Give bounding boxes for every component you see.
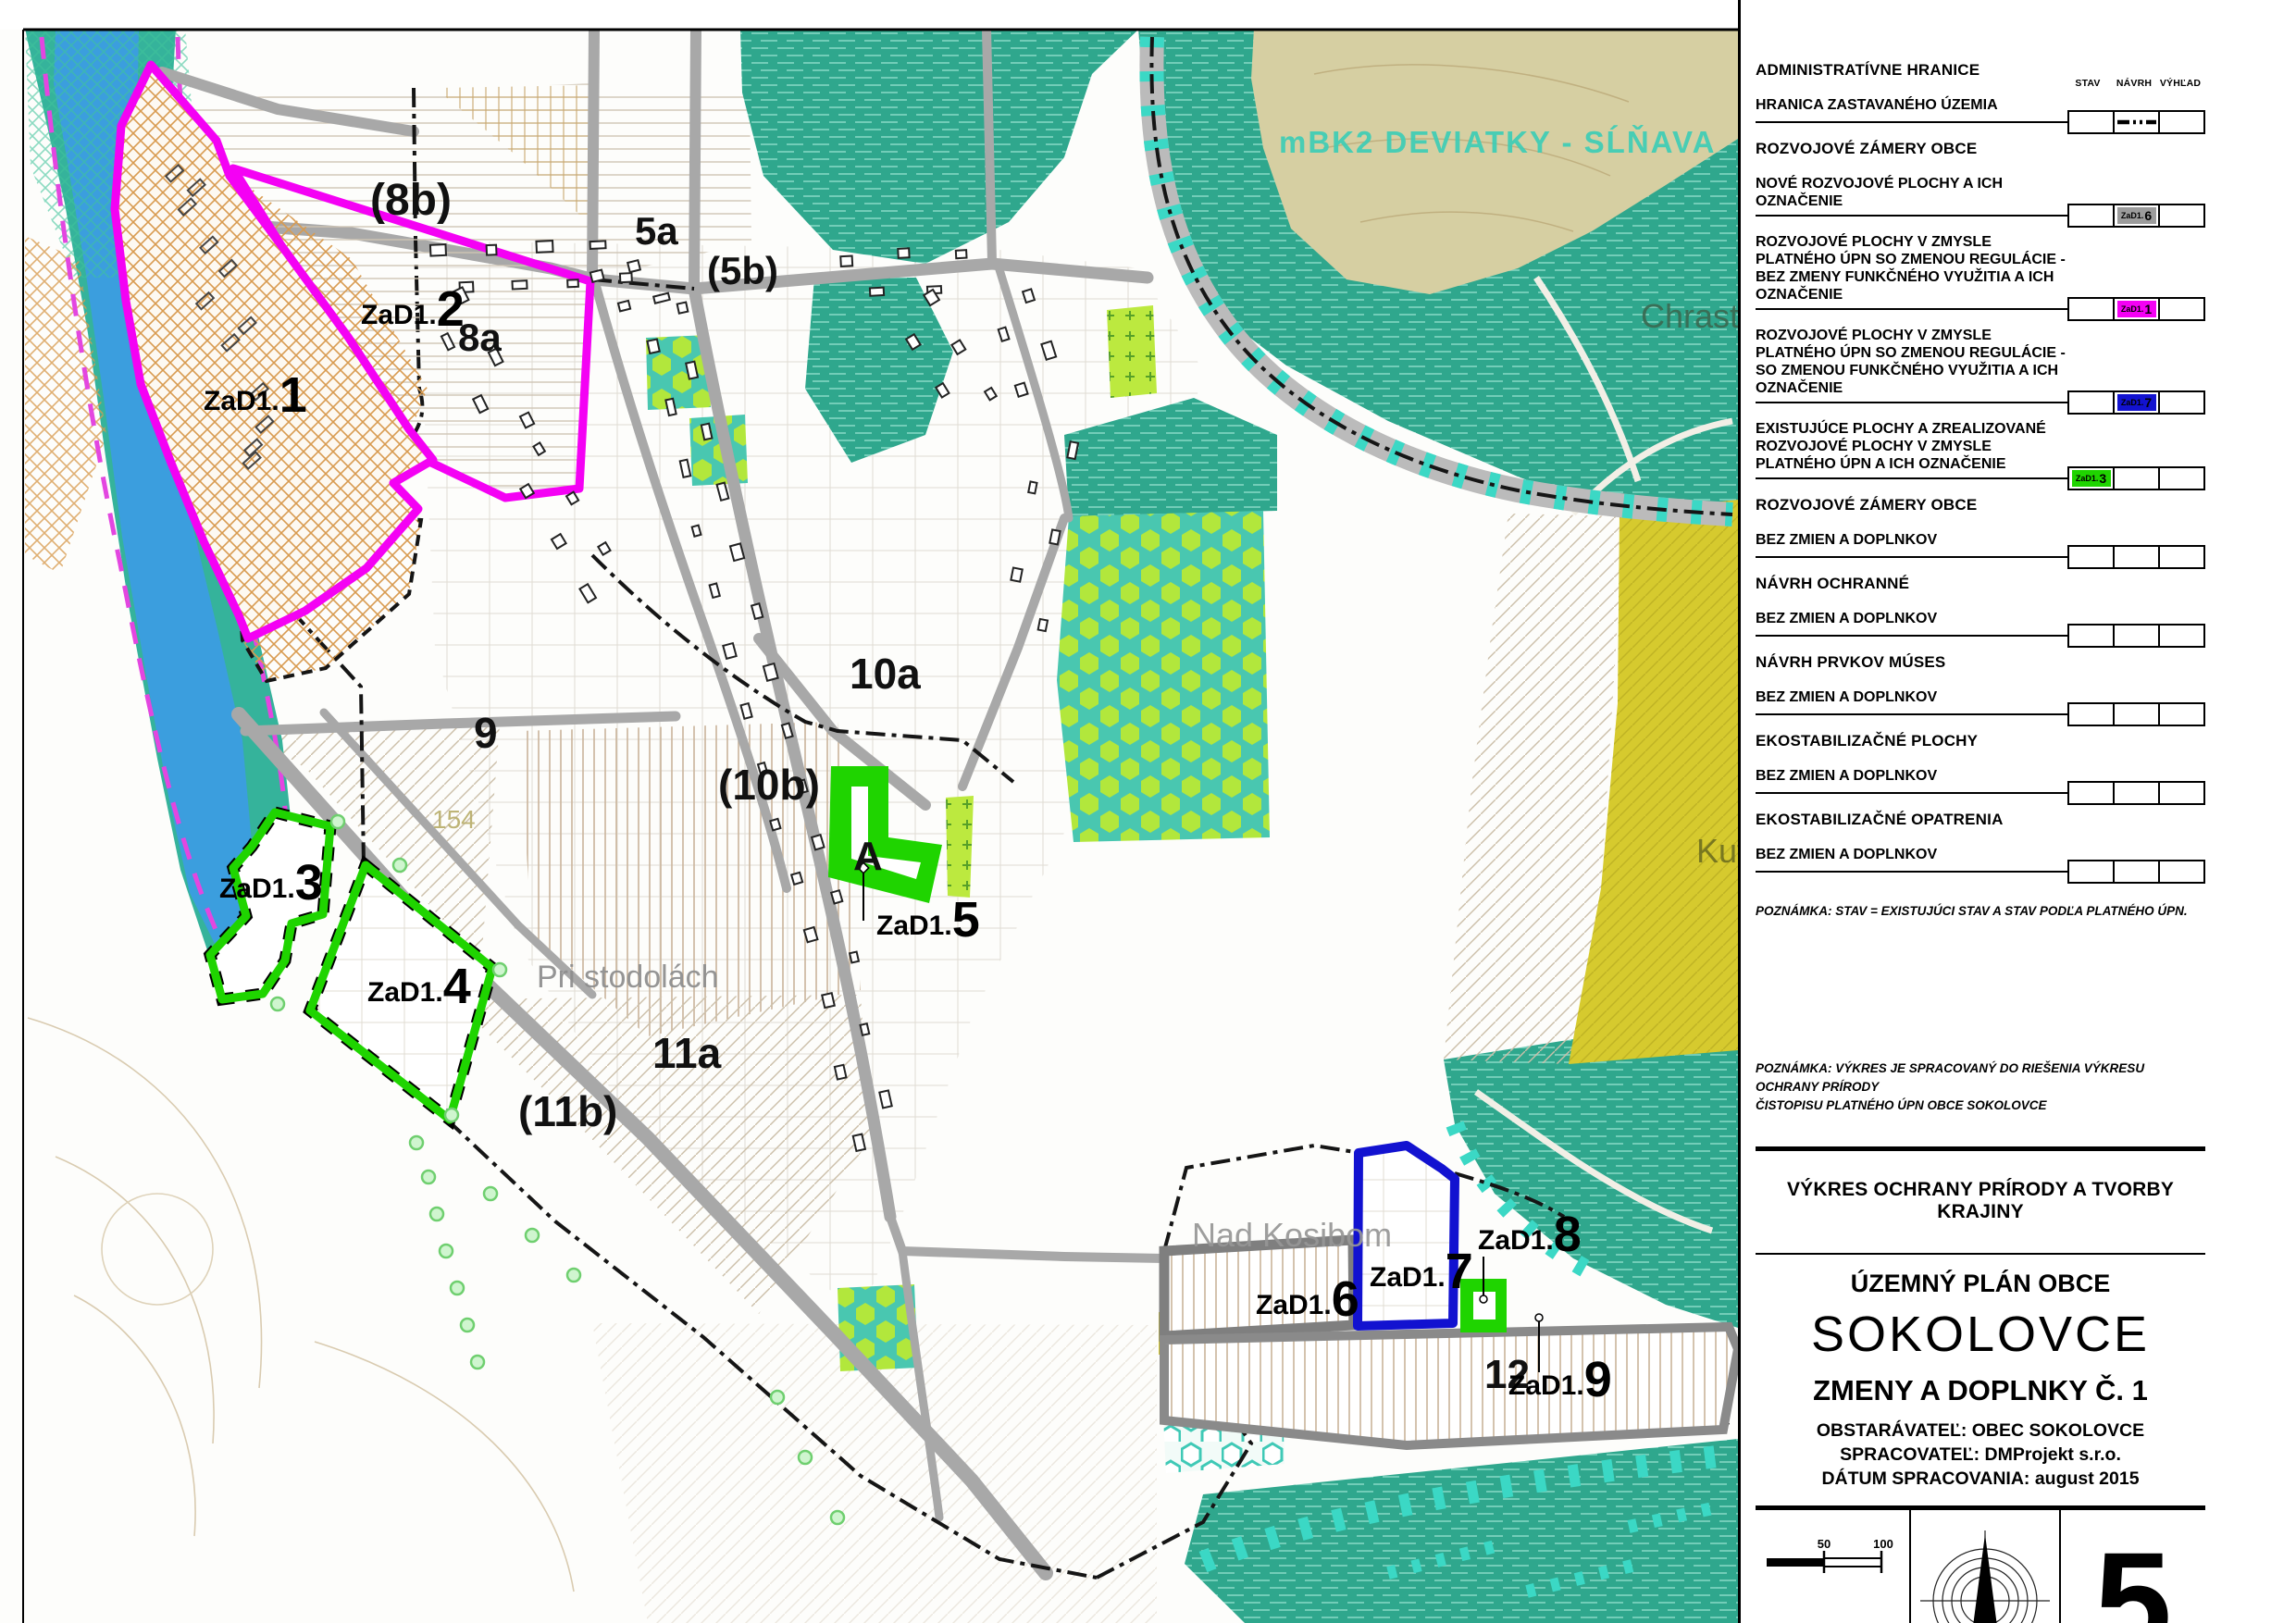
tree-marker: [461, 1319, 474, 1332]
house: [791, 873, 802, 885]
legend-area-tag: ZaD1.1: [2117, 301, 2156, 317]
legend-cell: ZaD1.6: [2113, 204, 2160, 228]
place-label: Chrast: [1641, 297, 1738, 335]
legend-row: BEZ ZMIEN A DOPLNKOV: [1756, 531, 2205, 558]
tag-prefix: ZaD1.: [2121, 399, 2144, 407]
legend-cell: [2113, 781, 2160, 805]
scale-section: 50 100 MIERKA 1 : 5 000: [1756, 1510, 1909, 1623]
sheet-number: 5: [2061, 1510, 2205, 1623]
tag-number: 7: [2144, 396, 2152, 409]
house: [512, 280, 527, 289]
tag-prefix: ZaD1.: [2121, 212, 2144, 220]
plan-type: ÚZEMNÝ PLÁN OBCE: [1756, 1270, 2205, 1298]
legend-column-header: NÁVRH: [2111, 78, 2157, 89]
legend-row: BEZ ZMIEN A DOPLNKOV: [1756, 846, 2205, 873]
scale-tick-50: 50: [1818, 1537, 1831, 1551]
divider-thick: [1756, 1146, 2205, 1151]
legend-cell: [2113, 624, 2160, 648]
legend-symbol-cells: [2069, 624, 2205, 648]
legend-cell: [2158, 702, 2205, 726]
legend-row: NOVÉ ROZVOJOVÉ PLOCHY A ICH OZNAČENIEZaD…: [1756, 175, 2205, 217]
tag-number: 6: [2144, 209, 2152, 222]
legend-column-header: STAV: [2065, 78, 2111, 89]
contractor-line: SPRACOVATEĽ: DMProjekt s.r.o.: [1756, 1443, 2205, 1467]
legend-row: BEZ ZMIEN A DOPLNKOV: [1756, 688, 2205, 715]
house: [835, 1065, 847, 1080]
legend-cell: [2067, 204, 2115, 228]
place-label: Nad Kosibom: [1192, 1216, 1392, 1254]
title-meta: OBSTARÁVATEĽ: OBEC SOKOLOVCE SPRACOVATEĽ…: [1756, 1419, 2205, 1491]
legend-cell: [2113, 110, 2160, 134]
area-label: 11a: [652, 1029, 722, 1077]
tree-marker: [567, 1269, 580, 1282]
legend-symbol-cells: ZaD1.7: [2069, 390, 2205, 415]
scale-tick-100: 100: [1873, 1537, 1893, 1551]
legend-symbol-cells: [2069, 702, 2205, 726]
legend-row: ROZVOJOVÉ PLOCHY V ZMYSLE PLATNÉHO ÚPN S…: [1756, 327, 2205, 403]
legend-column-headers: STAVNÁVRHVÝHĽAD: [2065, 78, 2205, 89]
legend-panel: ADMINISTRATÍVNE HRANICESTAVNÁVRHVÝHĽADHR…: [1738, 0, 2296, 1623]
place-label: mBK2 DEVIATKY - SĹŇAVA: [1279, 125, 1716, 159]
house: [1011, 568, 1022, 582]
legend-cell: [2067, 297, 2115, 321]
legend-symbol-cells: [2069, 860, 2205, 884]
tag-prefix: ZaD1.: [2076, 475, 2099, 483]
area-label: (11b): [518, 1087, 617, 1135]
legend-row: EXISTUJÚCE PLOCHY A ZREALIZOVANÉ ROZVOJO…: [1756, 420, 2205, 479]
area-label: (8b): [370, 176, 452, 225]
house: [870, 288, 884, 296]
legend: ADMINISTRATÍVNE HRANICESTAVNÁVRHVÝHĽADHR…: [1756, 61, 2205, 873]
legend-cell: [2067, 110, 2115, 134]
divider-thin: [1756, 1253, 2205, 1255]
house: [618, 301, 630, 311]
house: [677, 303, 689, 314]
house: [831, 890, 842, 903]
legend-cell: [2067, 860, 2115, 884]
tree-marker: [484, 1187, 497, 1200]
municipality-name: SOKOLOVCE: [1756, 1306, 2205, 1363]
legend-cell: [2067, 545, 2115, 569]
tree-marker: [771, 1391, 784, 1404]
house: [822, 993, 835, 1008]
zone-zad1-6: [1164, 1240, 1354, 1336]
legend-cell: [2067, 781, 2115, 805]
area-label: (5b): [707, 249, 778, 292]
tag-prefix: ZaD1.: [2121, 305, 2144, 314]
legend-row-label: NOVÉ ROZVOJOVÉ PLOCHY A ICH OZNAČENIE: [1756, 175, 2075, 210]
legend-section-header: EKOSTABILIZAČNÉ OPATRENIA: [1756, 811, 2205, 829]
plan-sheet: (8b)5a(5b)8a910a(10b)11a(11b)12AmBK2 DEV…: [0, 0, 2296, 1623]
legend-cell: ZaD1.1: [2113, 297, 2160, 321]
legend-cell: [2113, 702, 2160, 726]
map-area: (8b)5a(5b)8a910a(10b)11a(11b)12AmBK2 DEV…: [0, 0, 1738, 1623]
legend-section-header: ROZVOJOVÉ ZÁMERY OBCE: [1756, 140, 2205, 158]
tree-marker: [440, 1245, 453, 1258]
boundary-line-symbol: [2117, 118, 2156, 127]
legend-symbol-cells: ZaD1.3: [2069, 466, 2205, 490]
legend-section-header: ADMINISTRATÍVNE HRANICESTAVNÁVRHVÝHĽAD: [1756, 61, 2205, 80]
north-arrow-icon: [1916, 1527, 2054, 1623]
tree-marker: [445, 1109, 458, 1121]
legend-area-tag: ZaD1.3: [2072, 470, 2111, 487]
tree-marker: [393, 859, 406, 872]
legend-row-label: ROZVOJOVÉ PLOCHY V ZMYSLE PLATNÉHO ÚPN S…: [1756, 327, 2075, 397]
legend-cell: [2158, 390, 2205, 415]
area-label: 8a: [458, 316, 502, 359]
legend-cell: ZaD1.7: [2113, 390, 2160, 415]
area-label: (10b): [718, 761, 820, 809]
drawing-note-line1: POZNÁMKA: VÝKRES JE SPRACOVANÝ DO RIEŠEN…: [1756, 1059, 2205, 1096]
house: [567, 279, 578, 287]
legend-row-label: BEZ ZMIEN A DOPLNKOV: [1756, 767, 2075, 785]
house: [1015, 383, 1028, 397]
legend-cell: [2158, 110, 2205, 134]
house: [430, 244, 446, 256]
legend-cell: [2067, 702, 2115, 726]
legend-cell: [2158, 545, 2205, 569]
house: [723, 643, 736, 659]
legend-symbol-cells: ZaD1.6: [2069, 204, 2205, 228]
tree-marker: [471, 1356, 484, 1369]
legend-row-label: BEZ ZMIEN A DOPLNKOV: [1756, 531, 2075, 549]
house: [850, 952, 859, 963]
legend-section-header: NÁVRH OCHRANNÉ: [1756, 575, 2205, 593]
house: [770, 819, 780, 830]
legend-row: ROZVOJOVÉ PLOCHY V ZMYSLE PLATNÉHO ÚPN S…: [1756, 233, 2205, 310]
house: [956, 250, 967, 258]
house: [1028, 481, 1036, 493]
house: [590, 270, 604, 282]
legend-area-tag: ZaD1.7: [2117, 394, 2156, 411]
legend-row: HRANICA ZASTAVANÉHO ÚZEMIA: [1756, 96, 2205, 123]
house: [1038, 619, 1048, 631]
legend-symbol-cells: [2069, 781, 2205, 805]
legend-cell: [2158, 466, 2205, 490]
legend-cell: ZaD1.3: [2067, 466, 2115, 490]
legend-cell: [2158, 860, 2205, 884]
house: [804, 927, 818, 942]
area-label: 9: [474, 709, 498, 757]
legend-section-header: NÁVRH PRVKOV MÚSES: [1756, 653, 2205, 672]
place-label: Kutik: [1696, 832, 1738, 870]
legend-cell: [2067, 624, 2115, 648]
legend-cell: [2113, 860, 2160, 884]
amendment-title: ZMENY A DOPLNKY Č. 1: [1756, 1374, 2205, 1407]
legend-cell: [2158, 204, 2205, 228]
legend-row-label: BEZ ZMIEN A DOPLNKOV: [1756, 846, 2075, 863]
legend-cell: [2158, 297, 2205, 321]
tree-marker: [410, 1136, 423, 1149]
legend-cell: [2158, 624, 2205, 648]
house: [692, 526, 701, 537]
area-label: 5a: [635, 209, 678, 253]
place-label: Pri stodolách: [537, 960, 719, 995]
legend-row-label: BEZ ZMIEN A DOPLNKOV: [1756, 610, 2075, 627]
scale-bar: 50 100: [1765, 1536, 1904, 1579]
client-line: OBSTARÁVATEĽ: OBEC SOKOLOVCE: [1756, 1419, 2205, 1443]
legend-row: BEZ ZMIEN A DOPLNKOV: [1756, 767, 2205, 794]
tree-marker: [451, 1282, 464, 1295]
map-canvas: (8b)5a(5b)8a910a(10b)11a(11b)12AmBK2 DEV…: [0, 0, 1738, 1623]
legend-row-label: ROZVOJOVÉ PLOCHY V ZMYSLE PLATNÉHO ÚPN S…: [1756, 233, 2075, 304]
zone-zad1-9: [1164, 1314, 1738, 1445]
legend-area-tag: ZaD1.6: [2117, 207, 2156, 224]
drawing-note-line2: ČISTOPISU PLATNÉHO ÚPN OBCE SOKOLOVCE: [1756, 1096, 2205, 1115]
house: [861, 1023, 870, 1035]
house: [536, 241, 552, 253]
tree-marker: [331, 815, 344, 828]
tree-marker: [526, 1229, 539, 1242]
area-label: A: [853, 834, 883, 879]
legend-symbol-cells: [2069, 110, 2205, 134]
house: [590, 241, 606, 249]
house: [898, 248, 909, 257]
tree-marker: [422, 1171, 435, 1183]
legend-section-header: EKOSTABILIZAČNÉ PLOCHY: [1756, 732, 2205, 750]
legend-cell: [2067, 390, 2115, 415]
legend-row-label: HRANICA ZASTAVANÉHO ÚZEMIA: [1756, 96, 2075, 114]
legend-section-header: ROZVOJOVÉ ZÁMERY OBCE: [1756, 496, 2205, 514]
area-label: 10a: [850, 650, 921, 698]
legend-row-label: BEZ ZMIEN A DOPLNKOV: [1756, 688, 2075, 706]
title-block-footer: 50 100 MIERKA 1 : 5 000: [1756, 1505, 2205, 1623]
legend-row: BEZ ZMIEN A DOPLNKOV: [1756, 610, 2205, 637]
tree-marker: [430, 1208, 443, 1220]
tag-number: 3: [2099, 472, 2106, 485]
tree-marker: [799, 1451, 812, 1464]
legend-cell: [2113, 466, 2160, 490]
tag-number: 1: [2144, 303, 2152, 316]
legend-note: POZNÁMKA: STAV = EXISTUJÚCI STAV A STAV …: [1756, 904, 2205, 918]
drawing-note: POZNÁMKA: VÝKRES JE SPRACOVANÝ DO RIEŠEN…: [1756, 1059, 2205, 1115]
tree-marker: [831, 1511, 844, 1524]
house: [647, 340, 659, 353]
sheet-top-margin: [0, 0, 1738, 30]
legend-symbol-cells: ZaD1.1: [2069, 297, 2205, 321]
house: [1049, 529, 1060, 544]
tree-marker: [493, 963, 506, 976]
date-line: DÁTUM SPRACOVANIA: august 2015: [1756, 1467, 2205, 1491]
legend-cell: [2158, 781, 2205, 805]
legend-column-header: VÝHĽAD: [2157, 78, 2203, 89]
legend-symbol-cells: [2069, 545, 2205, 569]
house: [840, 256, 852, 266]
compass-section: [1909, 1510, 2061, 1623]
house: [627, 260, 640, 272]
legend-cell: [2113, 545, 2160, 569]
tree-marker: [271, 997, 284, 1010]
place-label: 154: [432, 805, 476, 834]
house: [620, 273, 632, 282]
drawing-title: VÝKRES OCHRANY PRÍRODY A TVORBY KRAJINY: [1756, 1179, 2205, 1223]
legend-row-label: EXISTUJÚCE PLOCHY A ZREALIZOVANÉ ROZVOJO…: [1756, 420, 2075, 473]
house: [487, 245, 497, 255]
